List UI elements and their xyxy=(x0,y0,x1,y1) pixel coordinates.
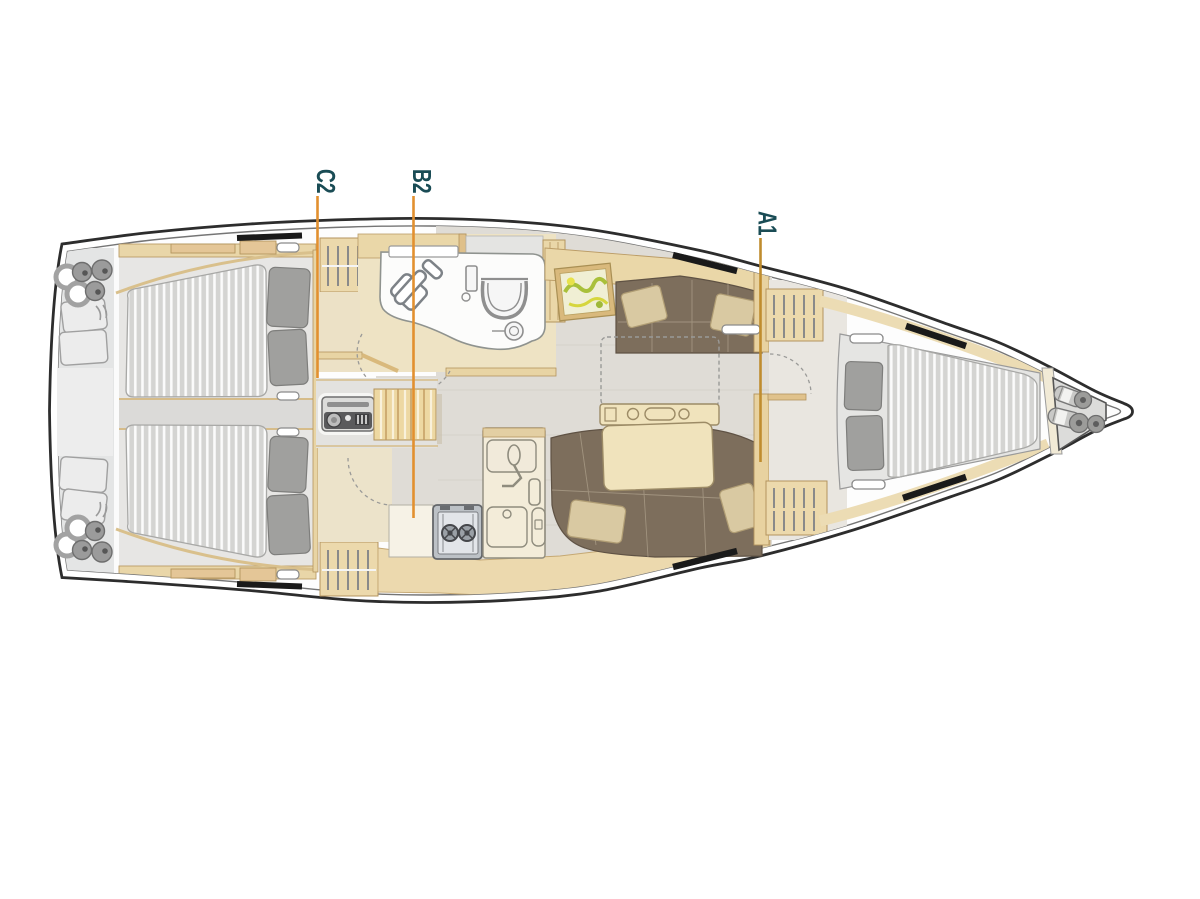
svg-text:A1: A1 xyxy=(753,211,783,236)
svg-text:C2: C2 xyxy=(311,169,341,194)
svg-text:B2: B2 xyxy=(407,169,437,194)
